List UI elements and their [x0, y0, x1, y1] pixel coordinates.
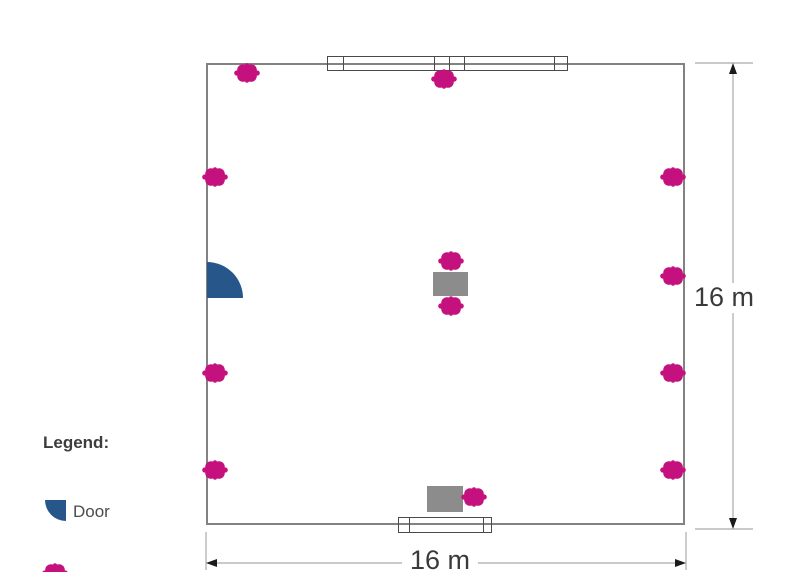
sensor-marker — [461, 487, 487, 507]
sensor-marker — [234, 63, 260, 83]
sensor-marker — [431, 69, 457, 89]
height-dimension-label: 16 m — [694, 283, 754, 311]
width-dimension-label: 16 m — [400, 546, 480, 572]
sensor-marker — [660, 266, 686, 286]
window-divider — [409, 518, 410, 532]
legend-title: Legend: — [43, 433, 109, 453]
window-divider — [554, 57, 555, 70]
legend-door-shape — [45, 500, 66, 521]
sensor-marker — [438, 296, 464, 316]
window-divider — [343, 57, 344, 70]
door-arc — [207, 262, 244, 299]
table-rect — [427, 486, 463, 512]
sensor-marker — [202, 167, 228, 187]
sensor-marker — [438, 251, 464, 271]
legend-door-label: Door — [73, 502, 110, 522]
sensor-marker — [202, 363, 228, 383]
sensor-marker — [660, 460, 686, 480]
door-icon — [45, 500, 66, 521]
window-divider — [483, 518, 484, 532]
table-rect — [433, 272, 468, 296]
window-divider — [464, 57, 465, 70]
sensor-marker — [202, 460, 228, 480]
object-layer — [0, 0, 800, 572]
sensor-marker — [660, 363, 686, 383]
floor-plan-canvas: 16 m 16 m Legend: Door — [0, 0, 800, 572]
legend-marker-icon — [42, 563, 68, 572]
sensor-marker — [660, 167, 686, 187]
window-bottom — [398, 517, 492, 533]
